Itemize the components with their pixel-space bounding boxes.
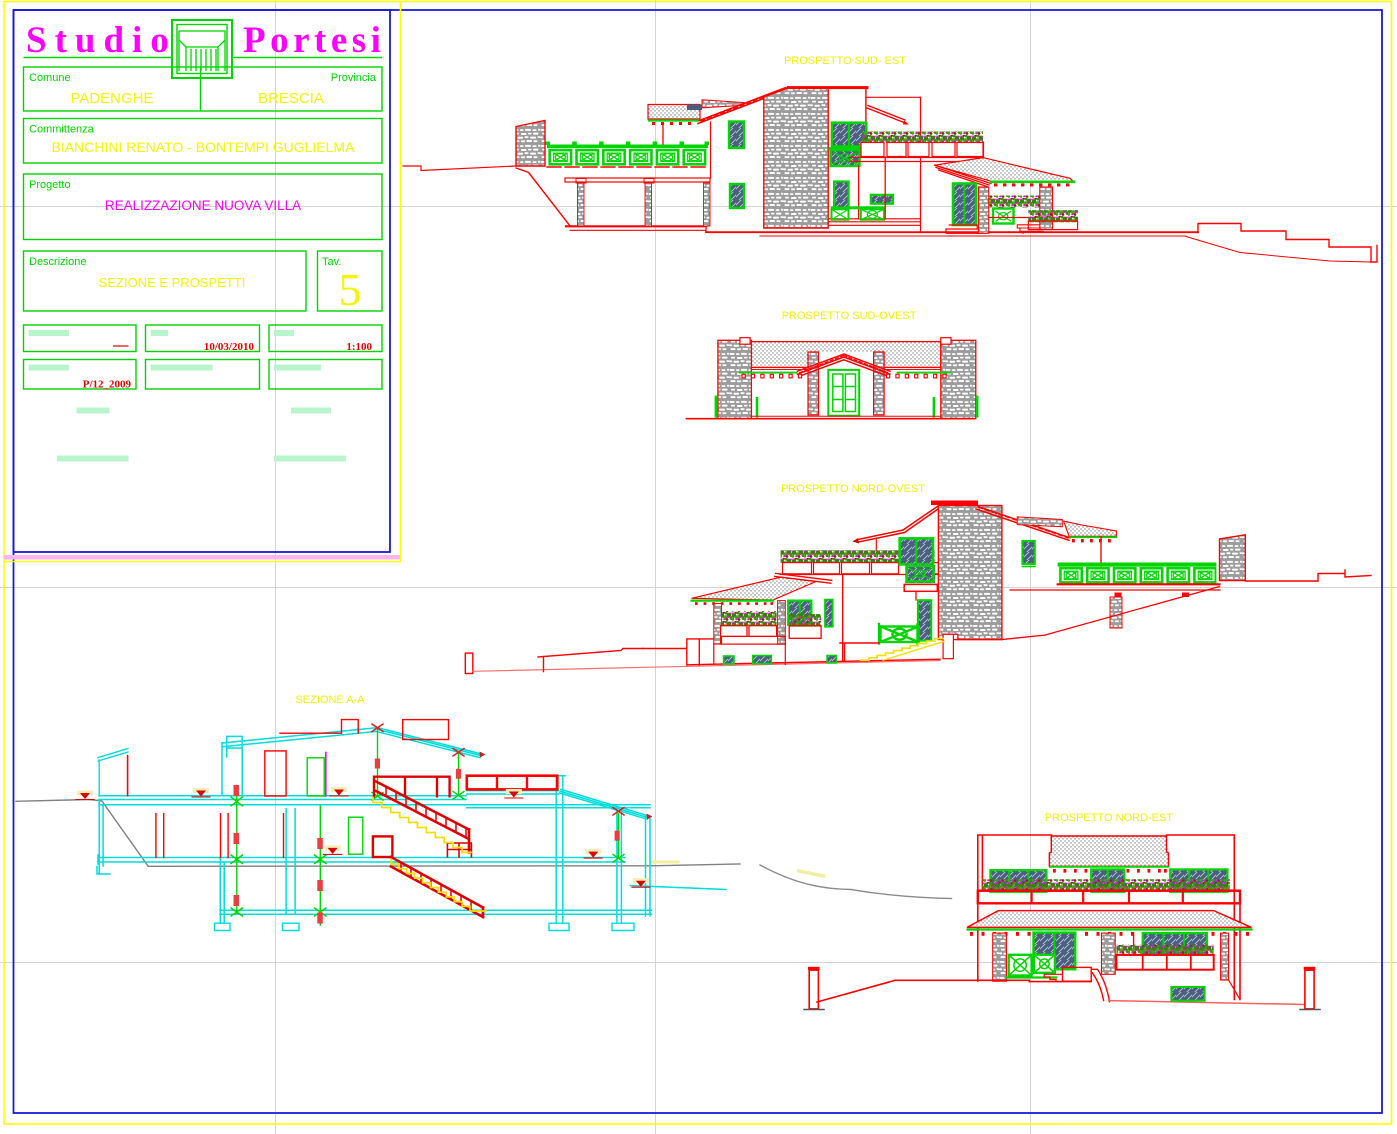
svg-text:1:100: 1:100: [346, 341, 372, 353]
svg-text:P/12_2009: P/12_2009: [83, 379, 132, 391]
svg-text:BIANCHINI RENATO - BONTEMPI GU: BIANCHINI RENATO - BONTEMPI GUGLIELMA: [52, 139, 356, 155]
svg-text:BRESCIA: BRESCIA: [258, 90, 324, 107]
svg-text:Provincia: Provincia: [331, 72, 377, 84]
svg-text:PADENGHE: PADENGHE: [70, 90, 153, 107]
svg-text:10/03/2010: 10/03/2010: [204, 341, 255, 353]
svg-text:Portesi: Portesi: [243, 20, 385, 61]
svg-text:SEZIONE E PROSPETTI: SEZIONE E PROSPETTI: [99, 275, 246, 290]
svg-text:REALIZZAZIONE NUOVA VILLA: REALIZZAZIONE NUOVA VILLA: [105, 198, 301, 213]
svg-text:Comune: Comune: [29, 72, 71, 84]
svg-text:PROSPETTO NORD-EST: PROSPETTO NORD-EST: [1045, 812, 1173, 824]
svg-text:PROSPETTO NORD-OVEST: PROSPETTO NORD-OVEST: [781, 483, 925, 495]
svg-text:5: 5: [339, 264, 362, 315]
svg-text:Progetto: Progetto: [29, 179, 71, 191]
svg-text:Studio: Studio: [26, 20, 177, 61]
svg-text:Committenza: Committenza: [29, 124, 95, 136]
svg-text:Descrizione: Descrizione: [29, 256, 86, 268]
svg-text:PROSPETTO SUD- EST: PROSPETTO SUD- EST: [784, 55, 906, 67]
svg-text:SEZIONE A-A: SEZIONE A-A: [295, 694, 365, 706]
svg-text:PROSPETTO SUD-OVEST: PROSPETTO SUD-OVEST: [782, 310, 917, 322]
